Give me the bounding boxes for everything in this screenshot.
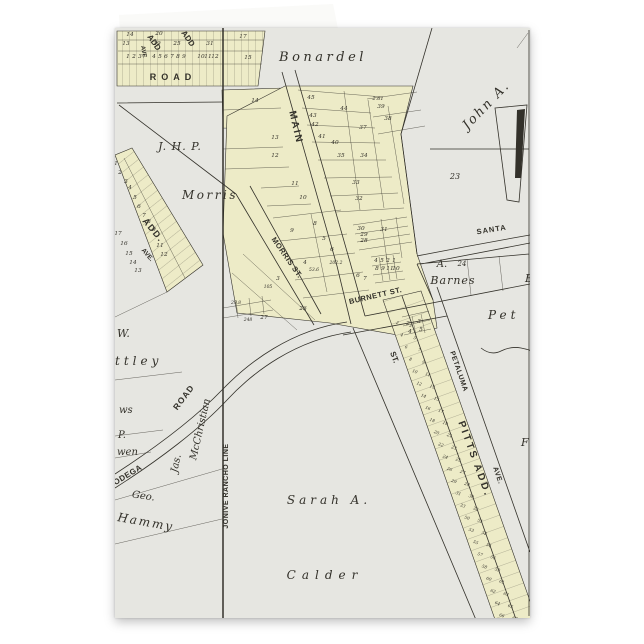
lot-number: 39 <box>377 104 385 110</box>
map-label: Barnes <box>429 274 475 287</box>
lot-number: 6 <box>330 247 334 253</box>
map-label: 29.8 <box>230 300 241 306</box>
lot-number: 2 <box>385 258 390 264</box>
map-label: Sarah A. <box>287 493 371 507</box>
lot-number: 8 <box>147 219 151 225</box>
map-label: 23 <box>449 172 460 181</box>
lot-number: 4 <box>151 54 156 60</box>
lot-number: 14 <box>251 98 259 104</box>
lot-number: 13 <box>134 268 142 274</box>
lot-number: 15 <box>125 251 133 257</box>
lot-number: 5 <box>158 54 162 60</box>
lot-number: 3 <box>138 54 142 60</box>
lot-number: 2 <box>117 170 122 176</box>
lot-number: 14 <box>126 32 134 38</box>
lot-number: 6 <box>356 273 360 279</box>
map-label: Calder <box>287 568 364 582</box>
lot-number: 14 <box>129 260 137 266</box>
lot-number: 3 <box>417 319 421 325</box>
lot-number: 44 <box>339 106 348 112</box>
map-label: 2.61 <box>371 96 383 102</box>
map-label: P. <box>117 430 126 441</box>
map-label: JONIVE RANCHO LINE <box>223 443 230 528</box>
lot-number: 35 <box>337 153 345 159</box>
map-label: ROAD <box>150 72 197 82</box>
lot-number: 7 <box>170 54 174 60</box>
lot-number: 12 <box>160 252 168 258</box>
lot-number: 6 <box>164 54 168 60</box>
lot-number: 31 <box>206 41 213 47</box>
lot-number: 7 <box>142 213 146 219</box>
lot-number: 31 <box>380 227 387 233</box>
lot-number: 28 <box>359 238 368 244</box>
lot-number: 13 <box>271 135 279 141</box>
lot-number: 5 <box>419 327 423 333</box>
lot-number: 11 <box>291 181 298 187</box>
map-label: W. <box>117 327 130 340</box>
map-label: wen <box>117 447 138 458</box>
map-label: B <box>524 272 530 285</box>
lot-number: 12 <box>211 54 219 60</box>
lot-number: 9 <box>290 228 294 234</box>
map-label: F <box>520 436 529 449</box>
lot-number: 3 <box>276 276 280 282</box>
map-label: ws <box>119 405 133 416</box>
lot-number: 9 <box>152 227 156 233</box>
lot-number: 12 <box>271 153 279 159</box>
lot-number: 2 <box>131 54 136 60</box>
map-label: Pet <box>487 308 519 322</box>
map-label: A. <box>436 259 447 270</box>
lot-number: 5 <box>380 258 384 264</box>
lot-number: 1 <box>115 161 118 167</box>
lot-number: 25 <box>172 41 181 47</box>
lot-number: 9 <box>381 266 385 272</box>
lot-number: 11 <box>156 243 163 249</box>
lot-number: 4 <box>127 185 132 191</box>
lot-number: 10 <box>392 266 400 272</box>
lot-number: 38 <box>384 116 392 122</box>
lot-number: 4 <box>407 329 412 335</box>
lot-number: 7 <box>363 276 367 282</box>
map-label: Bonardel <box>278 50 367 65</box>
lot-number: 5 <box>133 195 137 201</box>
greeting-card-front: BonardelJohn A.23J. H. P.MorrisA.24Barne… <box>115 28 530 618</box>
map-label: 248 <box>243 317 253 323</box>
lot-number: 41 <box>317 134 325 140</box>
lot-number: 43 <box>308 113 317 119</box>
lot-number: 9 <box>182 54 186 60</box>
lot-number: 15 <box>244 55 252 61</box>
lot-number: 1 <box>392 258 396 264</box>
map-label: J. H. P. <box>156 140 202 153</box>
lot-number: 13 <box>122 41 130 47</box>
map-label: 202.2 <box>329 260 343 266</box>
lot-number: 34 <box>360 153 368 159</box>
lot-number: 37 <box>359 125 367 131</box>
lot-number: 19 <box>153 41 161 47</box>
lot-number: 17 <box>115 231 122 237</box>
product-photo: BonardelJohn A.23J. H. P.MorrisA.24Barne… <box>0 0 644 644</box>
lot-number: 4 <box>373 258 378 264</box>
lot-number: 20 <box>154 31 163 37</box>
lot-number: 17 <box>239 34 247 40</box>
lot-number: 8 <box>176 54 180 60</box>
lot-number: 26 <box>298 306 307 312</box>
map-label: 24 <box>457 260 467 268</box>
lot-number: 4 <box>302 260 307 266</box>
lot-number: 8 <box>375 266 379 272</box>
map-svg: BonardelJohn A.23J. H. P.MorrisA.24Barne… <box>115 28 530 618</box>
lot-number: 40 <box>330 140 339 146</box>
lot-number: 1 <box>126 54 130 60</box>
lot-number: 6 <box>137 204 141 210</box>
lot-number: 16 <box>120 241 128 247</box>
lot-number: 5 <box>322 236 326 242</box>
lot-number: 42 <box>310 122 319 128</box>
lot-number: 32 <box>355 196 363 202</box>
lot-number: 45 <box>306 95 315 101</box>
map-label: ttley <box>115 354 162 368</box>
map-label: 105 <box>264 284 273 290</box>
map-label: Morris <box>181 188 238 202</box>
map-label: 53.6 <box>309 267 319 273</box>
lot-number: 10 <box>299 195 307 201</box>
lot-number: 27 <box>259 315 268 321</box>
lot-number: 8 <box>313 221 317 227</box>
lot-number: 33 <box>352 180 360 186</box>
